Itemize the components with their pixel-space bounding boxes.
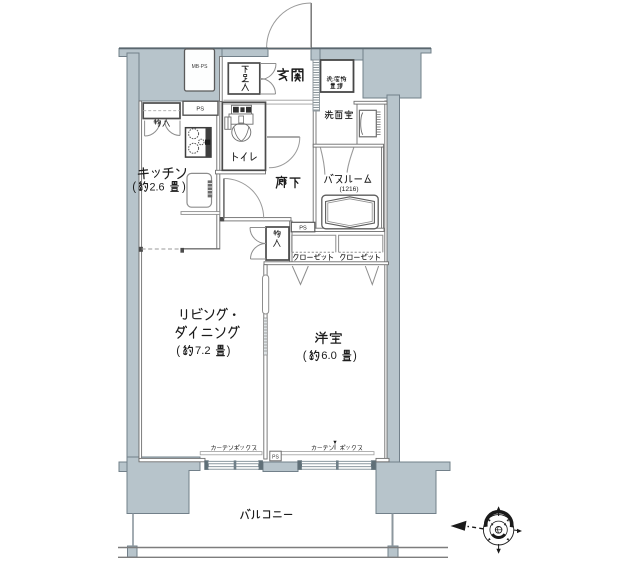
svg-text:PS: PS: [272, 455, 279, 461]
svg-text:6.0: 6.0: [321, 350, 337, 362]
svg-text:): ): [353, 350, 357, 362]
svg-text:PS: PS: [299, 226, 307, 232]
svg-text:(: (: [132, 182, 136, 194]
svg-text:): ): [182, 182, 186, 194]
svg-text:2.6: 2.6: [150, 181, 165, 193]
svg-text:PS: PS: [196, 106, 204, 112]
svg-text:(: (: [303, 350, 307, 362]
svg-text:7.2: 7.2: [195, 345, 211, 357]
svg-text:): ): [227, 345, 231, 357]
svg-text:MB·PS: MB·PS: [192, 64, 209, 70]
svg-text:(: (: [176, 345, 180, 357]
svg-text:(1216): (1216): [339, 186, 358, 193]
